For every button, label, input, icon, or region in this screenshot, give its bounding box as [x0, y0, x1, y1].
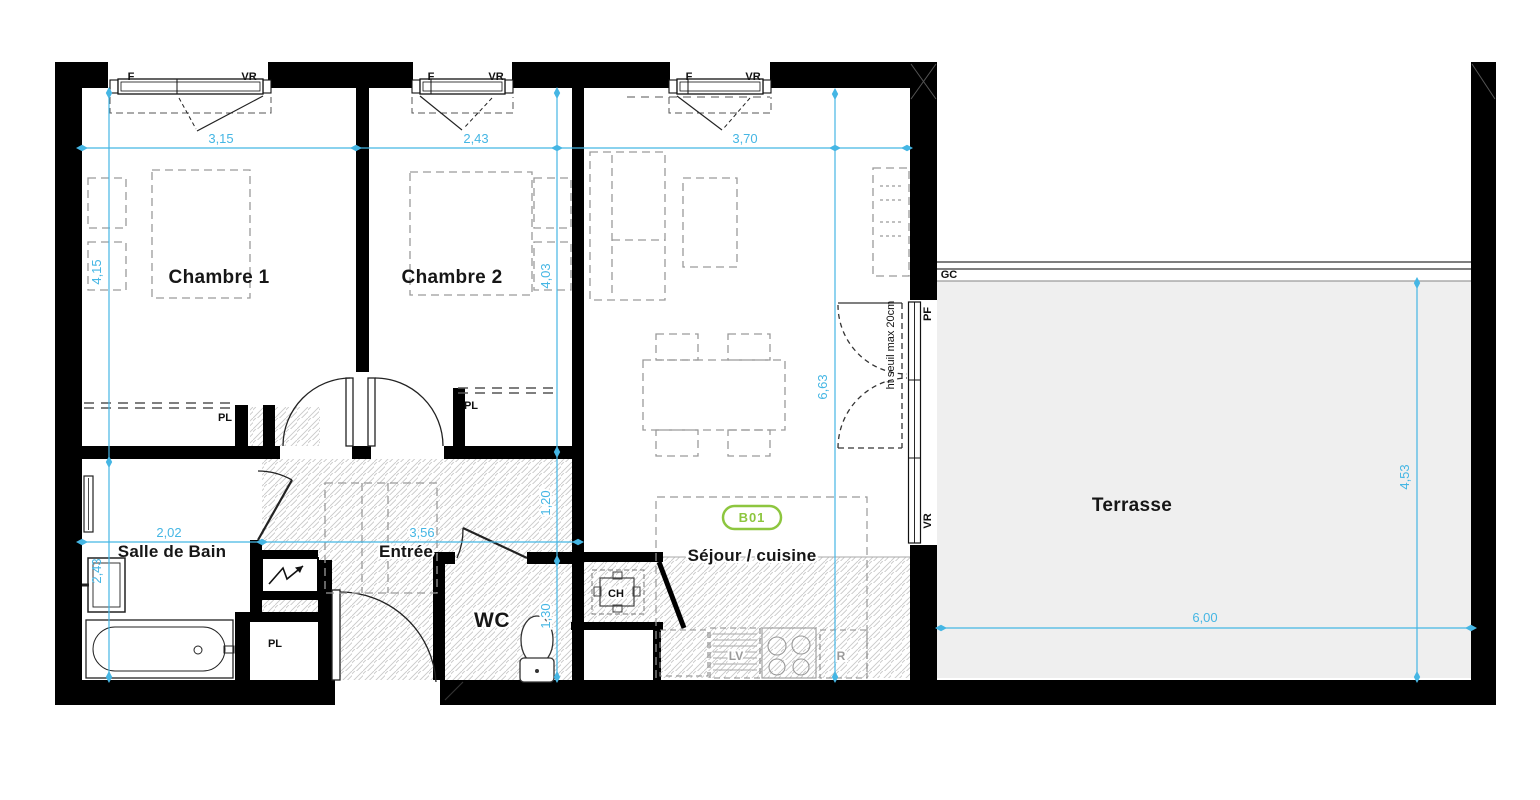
dim-couloir-depth: 1,20: [538, 490, 553, 515]
dim-chambre1-depth: 4,15: [89, 259, 104, 284]
coffee-table: [683, 178, 737, 267]
dim-chambre2-width: 2,43: [463, 131, 488, 146]
nightstand: [88, 178, 126, 228]
window-label-vr: VR: [745, 71, 760, 83]
sofa: [590, 152, 665, 300]
dining-set: [643, 334, 785, 456]
closet-label-pl: PL: [464, 400, 478, 412]
window-sejour: [669, 79, 771, 130]
room-label-terrasse: Terrasse: [1092, 495, 1172, 516]
threshold-note: ht seuil max 20cm: [885, 301, 897, 390]
dim-terrasse-width: 6,00: [1192, 610, 1217, 625]
unit-badge: B01: [723, 506, 781, 529]
window-label-f: F: [428, 71, 435, 83]
dim-sejour-width: 3,70: [732, 131, 757, 146]
guardrail-label-gc: GC: [941, 269, 958, 281]
dishwasher-label-lv: LV: [729, 649, 743, 663]
room-label-chambre1: Chambre 1: [169, 267, 270, 288]
bathtub: [86, 620, 234, 678]
water-heater-label-ch: CH: [608, 588, 624, 600]
unit-badge-text: B01: [739, 510, 766, 525]
dim-entree-width: 3,56: [409, 525, 434, 540]
window-label-f: F: [128, 71, 135, 83]
dim-salle-de-bain-width: 2,02: [156, 525, 181, 540]
room-label-chambre2: Chambre 2: [402, 267, 503, 288]
fridge-label-r: R: [837, 649, 846, 663]
window-label-f: F: [686, 71, 693, 83]
nightstand: [534, 178, 571, 228]
dim-terrasse-depth: 4,53: [1397, 464, 1412, 489]
dim-sejour-depth: 6,63: [815, 374, 830, 399]
closet-label-pl: PL: [268, 638, 282, 650]
dim-chambre2-depth: 4,03: [538, 263, 553, 288]
floor-plan-drawing: 3,15 2,43 3,70 2,02 3,56 6,00 4,15 2,43 …: [0, 0, 1540, 800]
room-label-entree: Entrée: [379, 542, 433, 561]
french-window-label-vr: VR: [922, 513, 934, 528]
window-chambre2: [412, 79, 513, 130]
closet-label-pl: PL: [218, 412, 232, 424]
dim-salle-de-bain-depth: 2,43: [89, 558, 104, 583]
floor-plan: 3,15 2,43 3,70 2,02 3,56 6,00 4,15 2,43 …: [0, 0, 1540, 800]
french-window-label-pf: PF: [922, 307, 934, 321]
window-chambre1: [110, 79, 271, 131]
sideboard: [873, 168, 909, 276]
window-label-vr: VR: [241, 71, 256, 83]
french-window-terrace: [908, 302, 921, 543]
electrical-panel-box: [262, 558, 318, 592]
dim-chambre1-width: 3,15: [208, 131, 233, 146]
room-label-sejour-cuisine: Séjour / cuisine: [688, 546, 817, 565]
room-label-salle-de-bain: Salle de Bain: [118, 542, 226, 561]
dim-wc-depth: 1,30: [538, 603, 553, 628]
closet-sliding-doors: [84, 97, 770, 408]
room-label-wc: WC: [474, 609, 510, 632]
door-chambre2: [368, 378, 443, 446]
radiator: [84, 476, 93, 532]
window-label-vr: VR: [488, 71, 503, 83]
